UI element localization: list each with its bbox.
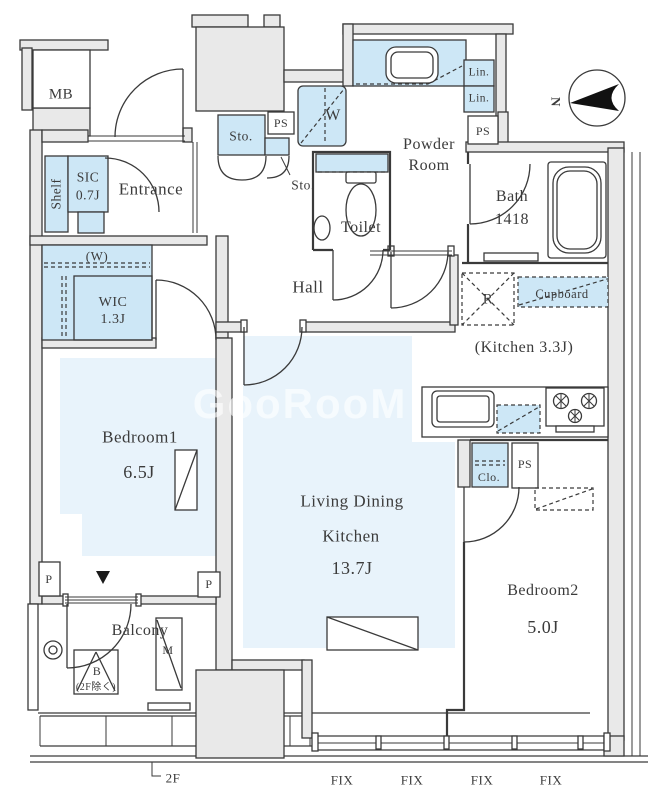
label-b-note: (2F除く): [76, 683, 116, 693]
label-bath-size: 1418: [495, 212, 529, 228]
label-wic-size: 1.3J: [101, 313, 126, 327]
label-bedroom1-size: 6.5J: [123, 463, 155, 481]
label-fix-1: FIX: [331, 774, 353, 787]
label-p-right: P: [205, 578, 212, 590]
label-sic: SIC: [77, 170, 100, 184]
storage-doors: [218, 156, 289, 180]
label-balcony: Balcony: [112, 623, 169, 639]
powder-door: [391, 252, 448, 308]
label-ldk-1: Living Dining: [300, 493, 403, 510]
label-bedroom2-size: 5.0J: [527, 618, 559, 636]
label-ldk-2: Kitchen: [322, 528, 379, 545]
toilet-tank: [346, 172, 376, 183]
label-shelf: Shelf: [49, 179, 63, 210]
label-bath: Bath: [496, 189, 528, 205]
label-powder-room-2: Room: [408, 158, 449, 174]
label-hall: Hall: [292, 279, 323, 296]
label-north: N: [550, 97, 563, 107]
label-m-marker: M: [162, 644, 173, 656]
label-bedroom1: Bedroom1: [102, 429, 178, 446]
floorplan: MB Shelf SIC 0.7J Entrance (W) WIC 1.3J …: [0, 0, 649, 800]
label-entrance: Entrance: [119, 181, 183, 198]
label-kitchen: (Kitchen 3.3J): [475, 340, 574, 356]
label-ldk-size: 13.7J: [331, 559, 372, 577]
label-linen-1: Lin.: [469, 67, 490, 79]
label-bedroom2: Bedroom2: [507, 583, 579, 599]
label-ps-top: PS: [274, 117, 288, 129]
label-fix-2: FIX: [401, 774, 423, 787]
label-powder-room-1: Powder: [403, 137, 455, 153]
label-fix-4: FIX: [540, 774, 562, 787]
balcony-drain: [44, 641, 62, 659]
label-storage-lower: Sto.: [291, 178, 314, 192]
label-p-left: P: [45, 573, 52, 585]
balcony-railing: [30, 713, 648, 776]
watermark: GooRooM: [193, 380, 408, 428]
toilet-sink: [314, 216, 330, 240]
label-ps-powder: PS: [476, 125, 490, 137]
label-washer-hookup: (W): [86, 250, 108, 263]
label-ps-kitchen: PS: [518, 458, 532, 470]
label-toilet: Toilet: [341, 220, 381, 236]
compass: [569, 70, 625, 126]
label-refrigerator: R: [483, 293, 494, 308]
entrance-door: [115, 69, 183, 137]
label-cupboard: Cupboard: [535, 288, 588, 301]
toilet-door: [333, 250, 383, 300]
label-fix-3: FIX: [471, 774, 493, 787]
label-sic-size: 0.7J: [76, 188, 100, 202]
label-floor-2f: 2F: [166, 772, 181, 785]
label-b-marker: B: [93, 665, 102, 677]
label-washer: W: [325, 108, 341, 124]
bedroom2-door: [464, 487, 519, 542]
bedroom1-door: [156, 280, 216, 340]
label-wic: WIC: [99, 296, 128, 310]
label-storage-upper: Sto.: [229, 129, 252, 143]
label-linen-2: Lin.: [469, 93, 490, 105]
label-mb: MB: [49, 88, 73, 103]
label-closet: Clo.: [478, 471, 500, 483]
down-triangle-marker: [96, 571, 110, 584]
